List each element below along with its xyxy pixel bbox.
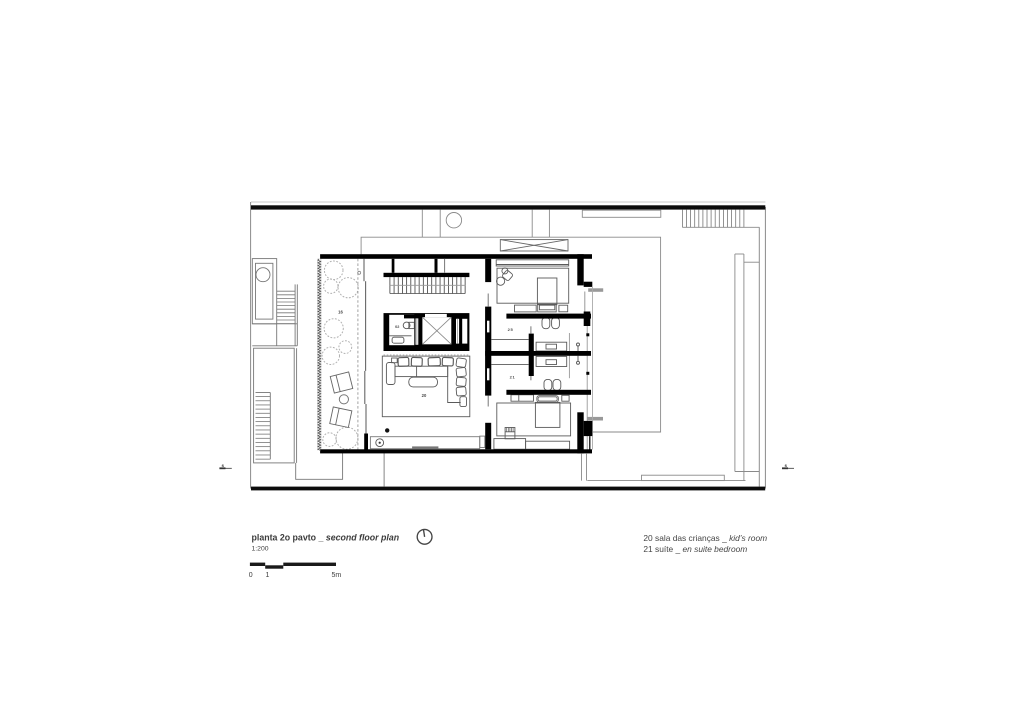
- svg-text:25: 25: [508, 327, 514, 332]
- svg-text:s: s: [785, 463, 788, 468]
- svg-text:16: 16: [338, 310, 343, 315]
- svg-text:20: 20: [422, 393, 427, 398]
- svg-text:1: 1: [266, 572, 270, 579]
- svg-text:21: 21: [510, 375, 516, 380]
- svg-text:1:200: 1:200: [252, 546, 269, 553]
- svg-text:02: 02: [395, 325, 399, 329]
- svg-text:21 suíte _ en suite bedroom: 21 suíte _ en suite bedroom: [643, 544, 747, 554]
- svg-text:s: s: [222, 463, 225, 468]
- svg-text:20 sala das crianças _ kid’s r: 20 sala das crianças _ kid’s room: [643, 533, 767, 543]
- svg-text:planta 2o pavto _ second floor: planta 2o pavto _ second floor plan: [252, 533, 400, 543]
- svg-text:5m: 5m: [332, 572, 342, 579]
- svg-text:0: 0: [249, 572, 253, 579]
